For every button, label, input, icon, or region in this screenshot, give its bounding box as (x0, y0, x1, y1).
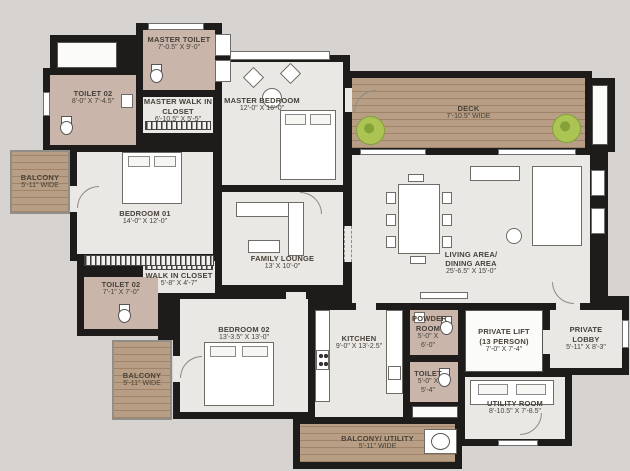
room-label: MASTER WALK IN CLOSET (143, 97, 213, 116)
dining-chair (442, 192, 452, 204)
room-dims: 5'-8" X 4'-7" (161, 280, 197, 289)
room-dims: 5'-11" WIDE (123, 380, 161, 389)
door-opening (173, 356, 180, 382)
room-label: PRIVATE LOBBY (564, 325, 608, 344)
kitchen-counter (386, 310, 403, 394)
sink (121, 94, 133, 108)
room-private-lift: PRIVATE LIFT (13 PERSON)7'-0" X 7'-4" (465, 310, 543, 372)
room-label: BALCONY (123, 371, 161, 380)
door-opening (70, 186, 77, 212)
bed-bedroom-01 (122, 152, 182, 204)
window (148, 23, 204, 30)
window (591, 170, 605, 196)
window (360, 149, 426, 155)
bed-bedroom-02 (204, 342, 274, 406)
door-opening (556, 303, 580, 310)
cabinet (215, 34, 231, 56)
service-shaft (57, 42, 117, 68)
window (498, 440, 538, 446)
room-label: TOILET 02 (102, 280, 141, 289)
room-balcony-lower: BALCONY5'-11" WIDE (112, 340, 172, 420)
sink (414, 312, 425, 323)
bed-utility (470, 380, 554, 405)
window (622, 320, 629, 348)
room-label: MASTER TOILET (148, 35, 211, 44)
open-passage (344, 226, 352, 262)
room-deck: DECK7'-10.5" WIDE (352, 78, 585, 148)
plant-icon (356, 116, 385, 145)
service-shaft (412, 406, 458, 418)
door-opening (286, 292, 306, 299)
room-dims: 5'-11" WIDE (359, 443, 397, 452)
room-dims: 7'-0" X 7'-4" (486, 346, 522, 355)
window (498, 149, 576, 155)
room-dims: 7'-1" X 7'-0" (103, 289, 139, 298)
dining-chair (410, 256, 426, 264)
master-bed (280, 110, 336, 180)
round-table (262, 88, 282, 108)
room-dims: 13' X 10'-0" (265, 263, 301, 272)
door-opening (345, 88, 352, 112)
room-dims: 9'-0" X 13'-2.5" (334, 343, 384, 352)
window (43, 92, 50, 116)
room-label: BEDROOM 01 (119, 209, 171, 218)
plant-icon (552, 114, 581, 143)
sofa (288, 202, 304, 256)
room-dims: 5'-11" X 8'-3" (566, 344, 606, 353)
washing-machine (424, 429, 457, 454)
room-dims: 8'-0" X 7'-4.5" (72, 98, 114, 107)
door-opening (543, 330, 550, 354)
room-dims: 14'-0" X 12'-0" (123, 218, 167, 227)
dining-chair (386, 214, 396, 226)
dining-chair (442, 214, 452, 226)
dining-table (398, 184, 440, 254)
coffee-table (248, 240, 280, 253)
room-label: BALCONY/ UTILITY (341, 434, 414, 443)
room-label: KITCHEN (342, 334, 377, 343)
toilet-fixture (118, 304, 131, 323)
door-opening (356, 303, 376, 310)
sofa-living (532, 166, 582, 246)
room-label: TOILET 02 (74, 89, 113, 98)
sofa-living (470, 166, 520, 181)
room-dims: 5'-0" X 6'-0" (410, 333, 446, 351)
dining-chair (442, 236, 452, 248)
room-dims: 7'-10.5" WIDE (447, 113, 491, 122)
wardrobe (84, 255, 214, 266)
room-balcony-upper: BALCONY5'-11" WIDE (10, 150, 70, 214)
room-label: LIVING AREA/ DINING AREA (434, 250, 508, 269)
room-dims: 25'-6.5" X 15'-0" (446, 268, 496, 277)
room-label: PRIVATE LIFT (13 PERSON) (475, 327, 533, 346)
toilet-fixture (60, 116, 73, 135)
toilet-fixture (438, 368, 451, 387)
dining-chair (408, 174, 424, 182)
toilet-fixture (150, 64, 163, 83)
service-shaft (592, 85, 608, 145)
room-label: FAMILY LOUNGE (251, 254, 314, 263)
tv-console (420, 292, 468, 299)
dining-chair (386, 236, 396, 248)
room-private-lobby: PRIVATE LOBBY5'-11" X 8'-3" (550, 310, 622, 368)
floor-plan: TOILET 028'-0" X 7'-4.5" MASTER TOILET7'… (0, 0, 630, 471)
coffee-table (506, 228, 522, 244)
room-label: DECK (457, 104, 479, 113)
window (230, 51, 330, 60)
room-label: BEDROOM 02 (218, 325, 270, 334)
room-dims: 5'-11" WIDE (21, 182, 59, 191)
window (591, 208, 605, 234)
toilet-fixture (440, 316, 453, 335)
stove (316, 350, 329, 370)
room-label: BALCONY (21, 173, 59, 182)
wardrobe (145, 121, 211, 130)
kitchen-sink (388, 366, 401, 380)
room-dims: 7'-0.5" X 9'-0" (158, 44, 200, 53)
cabinet (215, 60, 231, 82)
dining-chair (386, 192, 396, 204)
